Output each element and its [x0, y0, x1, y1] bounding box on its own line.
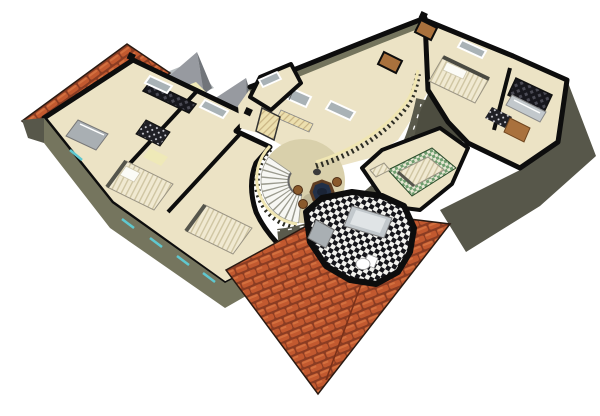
floorplan-3d-view[interactable] [0, 0, 600, 416]
stool [333, 178, 342, 187]
stool [299, 200, 308, 209]
stool [294, 186, 303, 195]
chair [313, 169, 321, 175]
